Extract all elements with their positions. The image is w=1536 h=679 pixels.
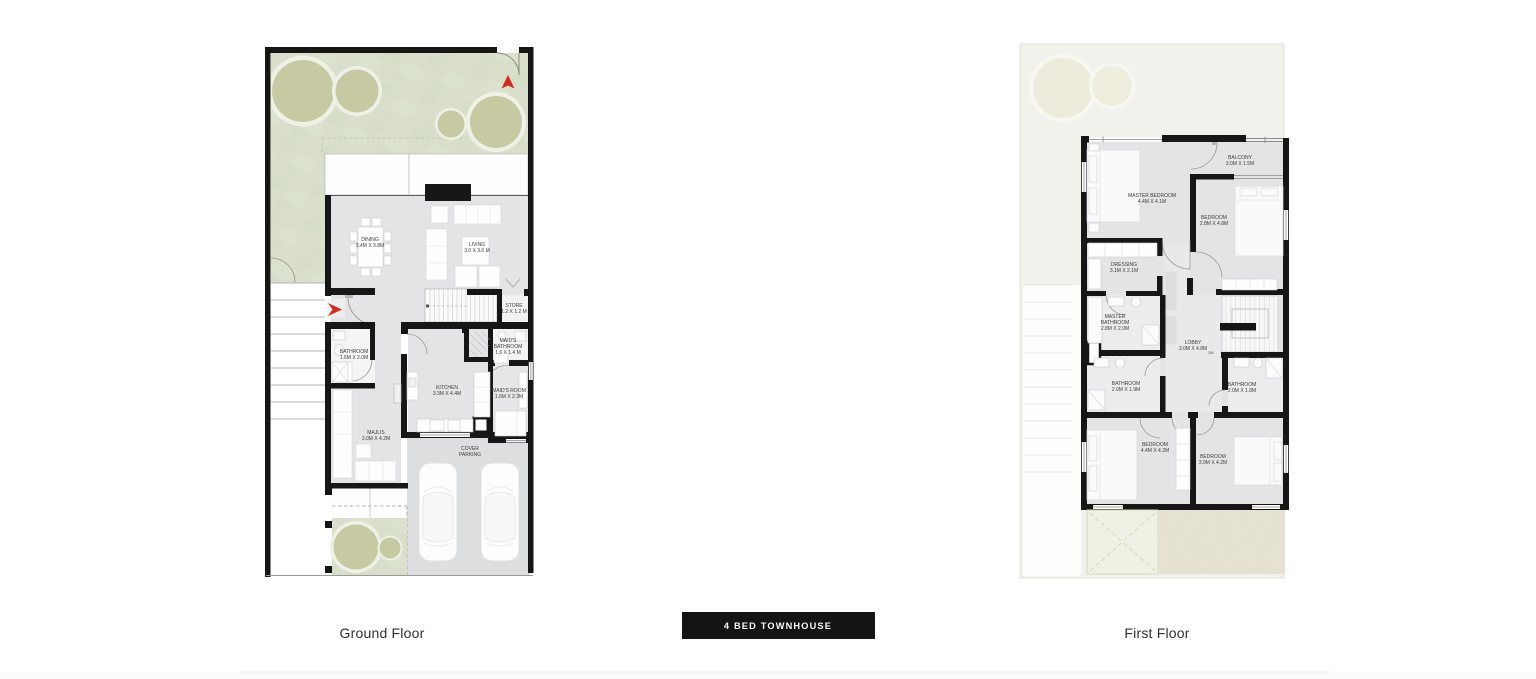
svg-text:3.4M X 3.8M: 3.4M X 3.8M [356, 243, 384, 249]
svg-text:3.0M X 4.8M: 3.0M X 4.8M [1179, 346, 1207, 352]
svg-text:1.6M X 2.0M: 1.6M X 2.0M [340, 355, 368, 361]
svg-text:4 BED TOWNHOUSE: 4 BED TOWNHOUSE [724, 621, 832, 631]
svg-text:3.0M X 4.2M: 3.0M X 4.2M [362, 436, 390, 442]
svg-text:3.0 X 3.6 M: 3.0 X 3.6 M [464, 248, 490, 254]
svg-text:3.0M X 1.5M: 3.0M X 1.5M [1226, 161, 1254, 167]
svg-text:First Floor: First Floor [1124, 625, 1189, 641]
svg-text:1.2 X 1.2 M: 1.2 X 1.2 M [501, 309, 527, 315]
svg-text:4.4M X 4.1M: 4.4M X 4.1M [1138, 199, 1166, 205]
svg-text:DN: DN [1208, 351, 1214, 355]
svg-text:3.9M X 4.2M: 3.9M X 4.2M [1199, 460, 1227, 466]
svg-text:2.8M X 2.0M: 2.8M X 2.0M [1101, 326, 1129, 332]
svg-text:3.3M X 4.4M: 3.3M X 4.4M [433, 391, 461, 397]
svg-text:1.6 X 1.4 M: 1.6 X 1.4 M [495, 350, 521, 356]
svg-text:2.0M X 1.8M: 2.0M X 1.8M [1228, 388, 1256, 394]
svg-text:4.4M X 4.2M: 4.4M X 4.2M [1141, 448, 1169, 454]
svg-text:2.8M X 4.8M: 2.8M X 4.8M [1200, 221, 1228, 227]
svg-text:Ground Floor: Ground Floor [340, 625, 425, 641]
svg-text:3.1M X 2.1M: 3.1M X 2.1M [1110, 268, 1138, 274]
svg-text:2.0M X 1.9M: 2.0M X 1.9M [1112, 387, 1140, 393]
svg-text:PARKING: PARKING [459, 452, 481, 458]
svg-text:1.6M X 2.3M: 1.6M X 2.3M [495, 394, 523, 400]
